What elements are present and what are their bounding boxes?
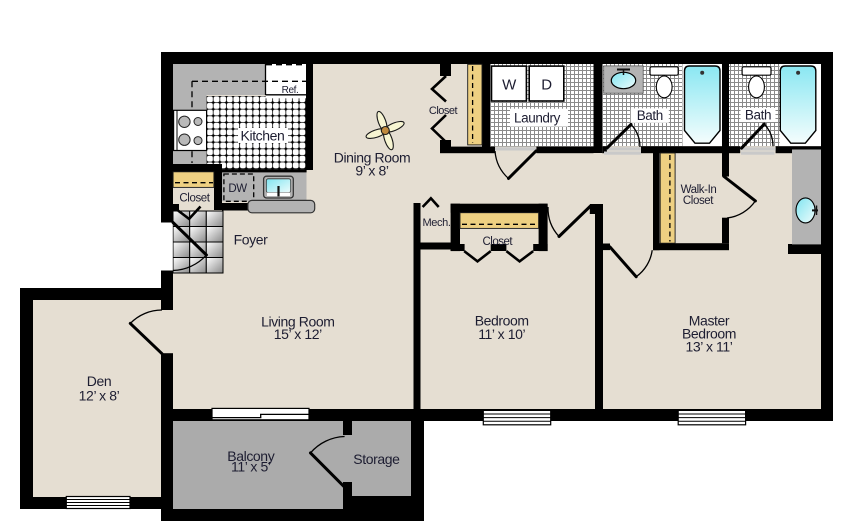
svg-text:D: D [541, 77, 552, 94]
svg-text:15’ x 12’: 15’ x 12’ [274, 326, 322, 342]
svg-text:Storage: Storage [353, 451, 400, 467]
svg-text:11’ x 10’: 11’ x 10’ [478, 326, 525, 342]
svg-text:DW: DW [228, 183, 247, 195]
svg-text:Closet: Closet [683, 195, 714, 207]
svg-text:13’ x 11’: 13’ x 11’ [686, 339, 733, 355]
svg-text:Bath: Bath [637, 108, 663, 123]
svg-text:Kitchen: Kitchen [241, 128, 285, 144]
svg-text:W: W [502, 77, 517, 94]
svg-text:Closet: Closet [429, 105, 458, 117]
svg-text:11’ x 5’: 11’ x 5’ [231, 459, 271, 475]
svg-text:9’ x 8’: 9’ x 8’ [355, 163, 389, 179]
svg-text:Closet: Closet [482, 236, 513, 248]
svg-text:Foyer: Foyer [234, 232, 269, 248]
svg-text:Closet: Closet [179, 193, 210, 205]
svg-text:Bath: Bath [745, 108, 771, 123]
svg-text:12’ x 8’: 12’ x 8’ [79, 388, 120, 404]
svg-text:Laundry: Laundry [514, 111, 561, 126]
svg-text:Mech.: Mech. [423, 217, 451, 229]
svg-text:Ref.: Ref. [282, 85, 299, 96]
